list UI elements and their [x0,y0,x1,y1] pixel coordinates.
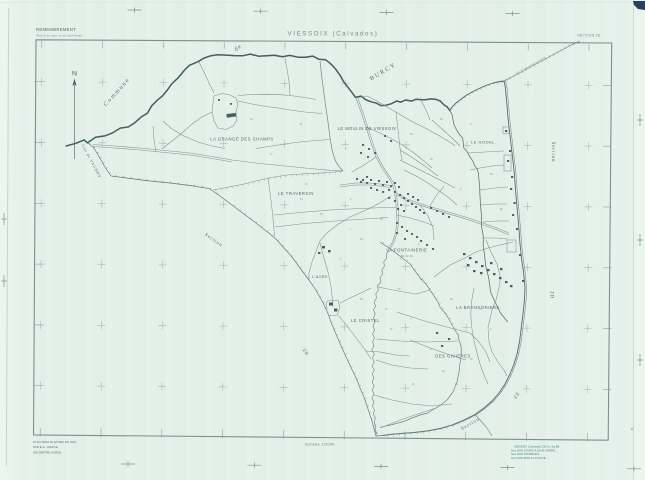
svg-text:SECTION ZD: SECTION ZD [577,34,601,38]
svg-text:27: 27 [270,154,273,156]
svg-text:39: 39 [430,159,433,161]
svg-text:LE MOULIN DE VIESSOIX: LE MOULIN DE VIESSOIX [338,126,397,131]
svg-text:LE CRISTEL: LE CRISTEL [351,318,380,323]
svg-text:Echelle 1/2000: Echelle 1/2000 [305,443,334,447]
svg-text:ZD: ZD [549,291,554,299]
svg-text:LE GODEL: LE GODEL [471,140,495,145]
svg-text:34: 34 [300,199,303,201]
svg-text:54: 54 [410,134,413,136]
svg-text:17: 17 [430,349,433,351]
svg-text:28: 28 [450,299,453,301]
svg-text:LA GRANGE DES CHAMPS: LA GRANGE DES CHAMPS [210,137,273,142]
svg-text:43: 43 [305,184,308,186]
svg-text:ZE: ZE [513,391,521,400]
svg-text:PAR E.G. VARIGE: PAR E.G. VARIGE [33,445,58,449]
svg-text:39: 39 [360,299,363,301]
svg-text:16: 16 [398,289,401,291]
svg-text:N: N [72,71,77,78]
svg-text:Section: Section [203,233,223,249]
svg-text:7: 7 [400,259,402,261]
svg-text:L'AGRE: L'AGRE [312,275,328,279]
svg-text:LA BRANSONIERE: LA BRANSONIERE [456,305,500,310]
svg-text:11: 11 [300,124,303,126]
svg-text:9: 9 [418,244,420,246]
svg-text:GEOMETRE AGREE: GEOMETRE AGREE [33,451,61,455]
svg-text:7: 7 [410,319,412,321]
svg-text:Section: Section [461,417,481,432]
svg-text:REMEMBREMENT: REMEMBREMENT [36,27,76,32]
svg-text:42: 42 [442,371,445,373]
svg-text:Commune: Commune [103,77,132,108]
svg-text:LA FONTAINERIE: LA FONTAINERIE [387,248,428,253]
svg-text:54: 54 [500,209,503,211]
svg-text:27: 27 [385,309,388,311]
svg-text:de: de [234,44,244,53]
svg-text:42: 42 [412,384,415,386]
svg-text:6: 6 [350,199,352,201]
svg-text:DES GIVIERES: DES GIVIERES [435,354,471,359]
svg-text:Cne de VAUDRY: Cne de VAUDRY [81,143,103,179]
svg-text:38: 38 [470,359,473,361]
svg-text:Section: Section [550,142,555,163]
svg-text:BURCY: BURCY [369,62,398,82]
svg-text:4: 4 [350,229,352,231]
svg-text:37: 37 [390,329,393,331]
svg-text:5: 5 [345,149,347,151]
svg-text:5: 5 [340,259,342,261]
svg-text:VIESSOIX (Calvados): VIESSOIX (Calvados) [288,31,379,38]
svg-text:38: 38 [380,219,383,221]
svg-text:(Titre III du Livre I er du Co: (Titre III du Livre I er du Code Rural) [36,35,82,38]
svg-text:PLAN MINUTE ETABLI EN 2001: PLAN MINUTE ETABLI EN 2001 [33,440,77,444]
svg-text:5: 5 [490,329,492,331]
svg-text:36: 36 [440,119,443,121]
svg-text:25: 25 [490,174,493,176]
svg-text:5: 5 [460,189,462,191]
svg-text:29: 29 [360,239,363,241]
svg-text:56.42.02: 56.42.02 [401,254,414,258]
svg-text:LE TRAVERSIN: LE TRAVERSIN [278,191,314,196]
svg-text:39: 39 [455,384,458,386]
svg-text:22: 22 [250,119,253,121]
svg-text:C.R. N 2 de Viessoix a Burcy: C.R. N 2 de Viessoix a Burcy [515,55,546,75]
svg-text:8: 8 [470,124,472,126]
svg-text:Nos NON PRIS A LA SUITE ...: Nos NON PRIS A LA SUITE ... [511,456,549,460]
svg-text:15: 15 [320,214,323,216]
svg-text:ZB: ZB [301,348,309,357]
